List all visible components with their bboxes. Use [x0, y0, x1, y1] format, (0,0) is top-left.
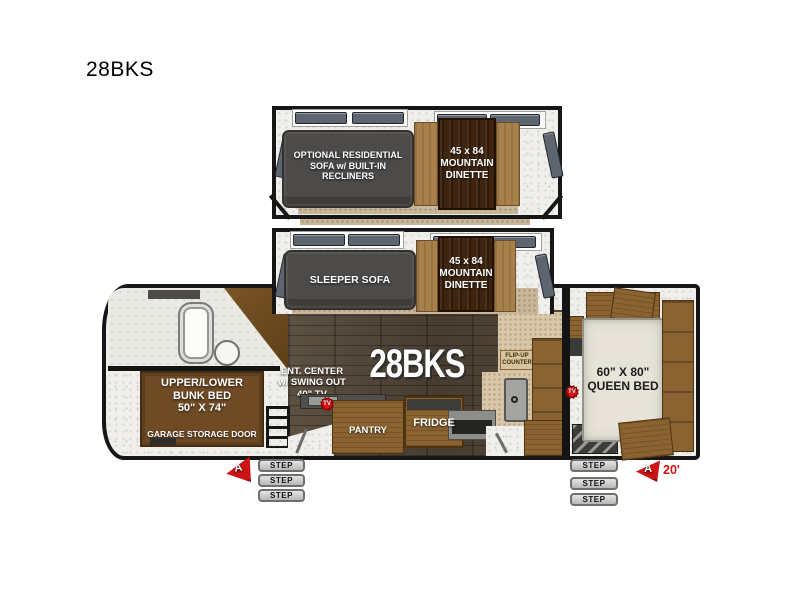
dinette-bench: [416, 240, 438, 312]
entry-step: STEP: [258, 474, 305, 487]
tv-starburst-icon: TV: [564, 384, 580, 400]
foot-wardrobe: [618, 417, 674, 460]
bathroom-shelf: [148, 290, 200, 299]
door-handle-icon: [511, 396, 518, 403]
dinette-bench: [494, 240, 516, 312]
window-icon: [352, 112, 404, 124]
mountain-dinette-label: 45 x 84 MOUNTAIN DINETTE: [438, 240, 494, 308]
entry-step: STEP: [570, 477, 618, 490]
residential-sofa-label: OPTIONAL RESIDENTIAL SOFA w/ BUILT-IN RE…: [284, 138, 412, 194]
awning-length-label: 20': [663, 463, 680, 477]
entry-step: STEP: [258, 459, 305, 472]
entry-step: STEP: [570, 459, 618, 472]
slideout-base: [300, 219, 530, 225]
bedroom-wall: [562, 288, 570, 456]
tv-badge-label: TV: [564, 384, 580, 400]
queen-bed-label: 60" X 80" QUEEN BED: [584, 360, 662, 398]
dinette-bench: [496, 122, 520, 206]
dinette-bench: [414, 122, 438, 206]
bunk-ladder-icon: [266, 406, 290, 448]
awning-marker-icon: A: [224, 456, 254, 486]
fridge-top: [407, 399, 461, 410]
awning-marker-letter: A: [233, 461, 243, 474]
pantry-label: PANTRY: [334, 424, 402, 437]
entry-step: STEP: [570, 493, 618, 506]
entry-step: STEP: [258, 489, 305, 502]
fridge-label: FRIDGE: [406, 416, 462, 431]
sleeper-sofa-label: SLEEPER SOFA: [286, 252, 414, 308]
flip-up-counter-label: FLIP-UP COUNTER: [500, 350, 534, 370]
window-icon: [293, 234, 345, 246]
kitchen-base-cabinet: [524, 420, 564, 456]
window-icon: [295, 112, 347, 124]
awning-marker-letter: A: [644, 463, 652, 475]
window-icon: [348, 234, 400, 246]
page-title: 28BKS: [86, 58, 154, 82]
tv-starburst-icon: TV: [319, 396, 335, 412]
tv-badge-label: TV: [319, 396, 335, 412]
floorplan-page: { "title": "28BKS", "slide_top": { "sofa…: [0, 0, 800, 600]
mountain-dinette-label: 45 x 84 MOUNTAIN DINETTE: [438, 128, 496, 200]
awning-marker-icon: A: [636, 460, 660, 482]
bathtub-icon: [178, 302, 214, 364]
bunk-bed-label: UPPER/LOWER BUNK BED 50" X 74": [142, 375, 262, 417]
toilet-icon: [214, 340, 240, 366]
storage-hardware: [150, 438, 176, 445]
